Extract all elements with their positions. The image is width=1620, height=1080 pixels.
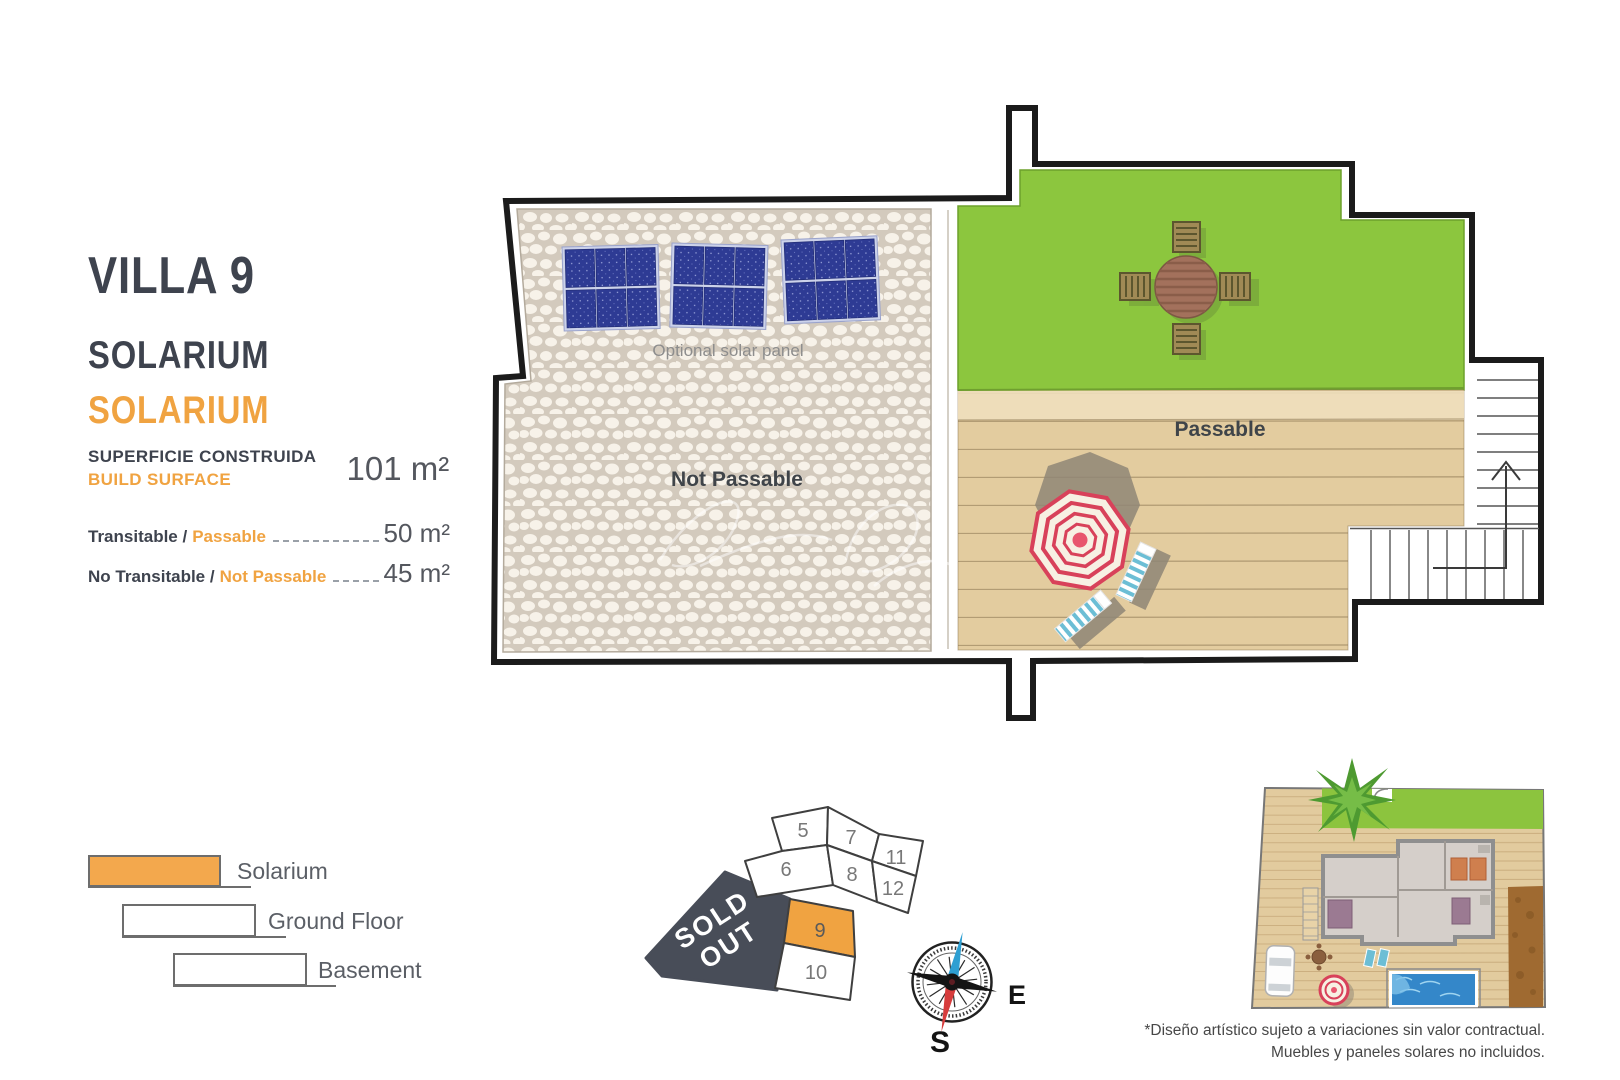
- thumbnail-car: [1265, 946, 1295, 997]
- thumbnail-soil: [1508, 886, 1543, 1008]
- deck-top-plank: [958, 391, 1464, 420]
- passable-label: Passable: [1174, 418, 1265, 441]
- solar-panel-array: [562, 244, 660, 330]
- plot-number: 10: [805, 962, 827, 984]
- plot-number-highlighted: 9: [814, 920, 825, 942]
- disclaimer-line1: *Diseño artístico sujeto a variaciones s…: [945, 1020, 1545, 1042]
- compass-east-label: E: [1008, 980, 1026, 1010]
- plot-map: 5 6 7 8 11 12 9 10 SOLD OUT: [646, 807, 923, 1000]
- disclaimer-line2: Muebles y paneles solares no incluidos.: [945, 1042, 1545, 1064]
- plot-number: 11: [886, 847, 907, 869]
- chair: [1173, 324, 1200, 354]
- chair: [1173, 222, 1200, 252]
- optional-solar-label: Optional solar panel: [652, 341, 803, 360]
- plot-number: 6: [780, 859, 791, 881]
- plot-number: 5: [797, 820, 808, 842]
- plot-number: 12: [882, 878, 904, 900]
- plot-number: 8: [846, 864, 857, 886]
- chair: [1220, 273, 1250, 300]
- disclaimer: *Diseño artístico sujeto a variaciones s…: [945, 1020, 1545, 1065]
- solarium-floor-plan: Optional solar panel Not Passable Passab…: [494, 108, 1541, 718]
- thumbnail-pool: [1387, 969, 1480, 1010]
- solar-panel-array: [781, 236, 881, 324]
- not-passable-label: Not Passable: [671, 468, 803, 491]
- brochure-page: VILLA 9 SOLARIUM SOLARIUM SUPERFICIE CON…: [0, 0, 1620, 1080]
- thumbnail-house: [1323, 841, 1493, 944]
- plan-canvas: Optional solar panel Not Passable Passab…: [0, 0, 1620, 1080]
- chair: [1120, 273, 1150, 300]
- solar-panel-array: [670, 243, 768, 329]
- site-plan-thumbnail: [1252, 758, 1545, 1010]
- plot-number: 7: [845, 827, 856, 849]
